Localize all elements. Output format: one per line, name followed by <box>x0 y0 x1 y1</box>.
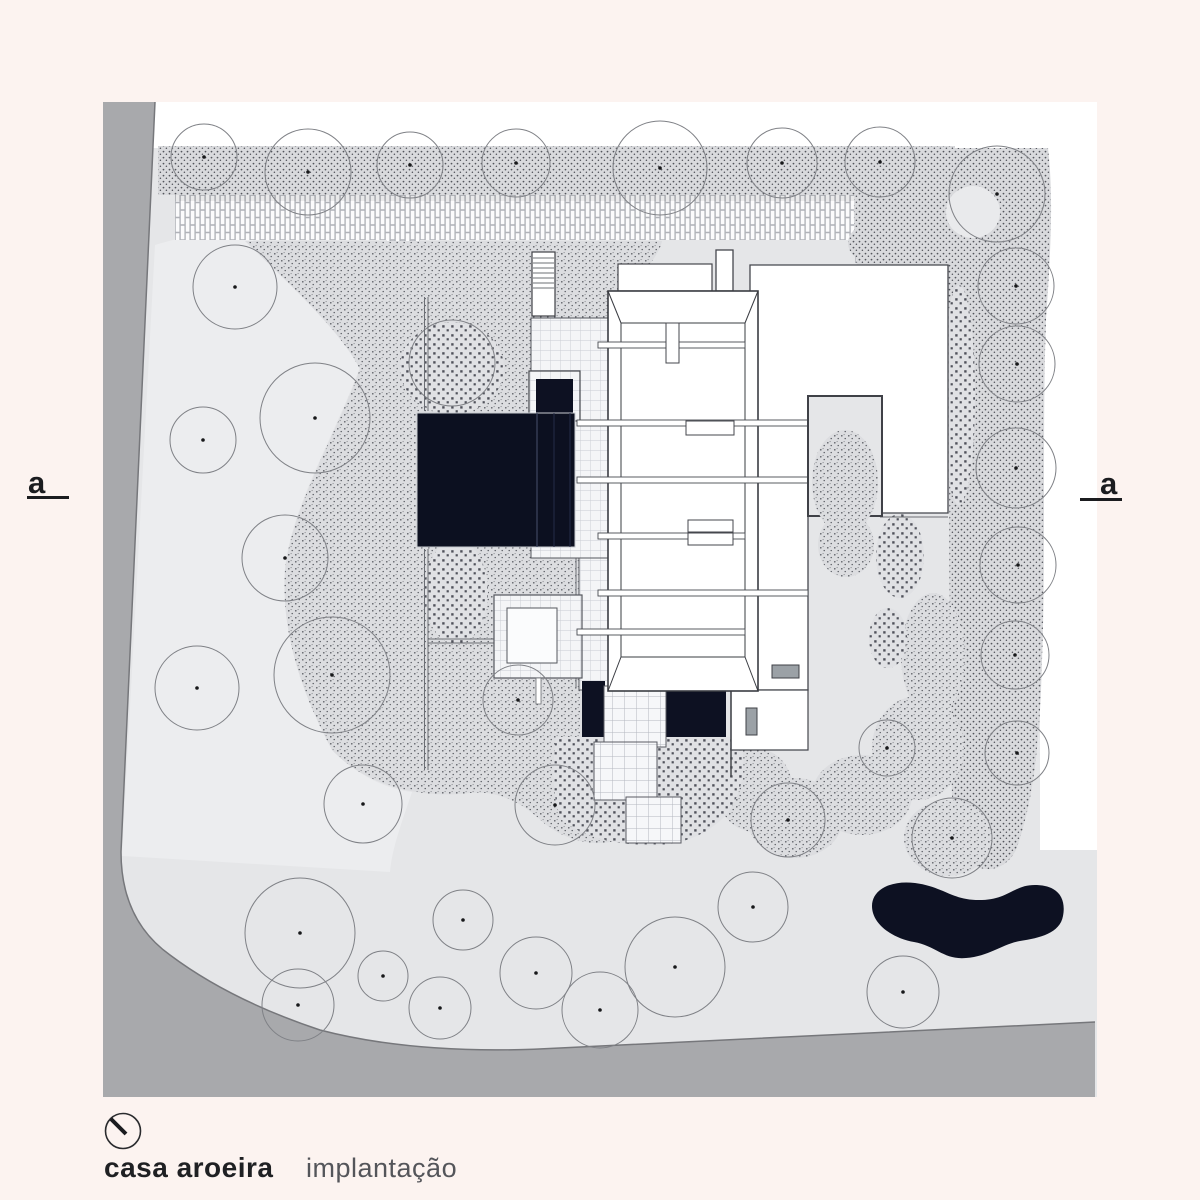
north-arrow-icon <box>106 1114 141 1149</box>
section-letter: a <box>28 465 46 500</box>
bench <box>772 665 799 678</box>
spa-pool <box>536 379 573 413</box>
section-marker-left: a <box>27 465 69 500</box>
site-plan-sheet: a a casa aroeira implantação <box>0 0 1200 1200</box>
site-plan-canvas: a a casa aroeira implantação <box>0 0 1200 1200</box>
pillar <box>746 708 757 735</box>
ladder <box>532 252 555 316</box>
title-block: casa aroeira implantação <box>104 1114 457 1184</box>
courtyard-garden <box>808 396 882 577</box>
plan-subtitle: implantação <box>306 1153 457 1183</box>
terrace <box>731 690 808 750</box>
plan-title: casa aroeira <box>104 1152 273 1183</box>
chimney <box>716 250 733 291</box>
section-letter: a <box>1100 466 1118 501</box>
